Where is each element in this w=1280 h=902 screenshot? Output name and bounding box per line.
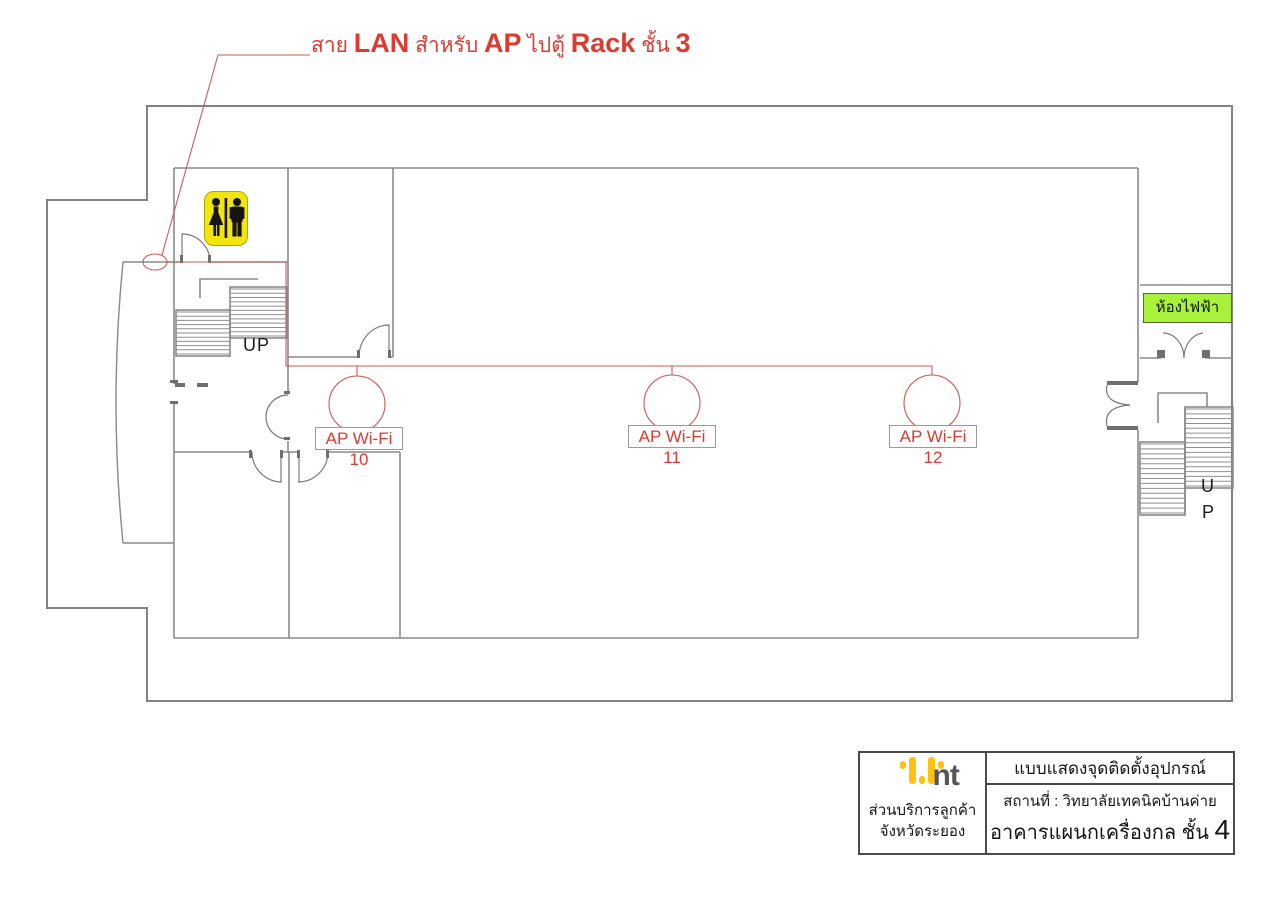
org-line-1: ส่วนบริการลูกค้า — [869, 800, 977, 821]
org-line-2: จังหวัดระยอง — [880, 821, 965, 842]
floor-plan-drawing: สาย LAN สำหรับ AP ไปตู้ Rack ชั้น 3 ห้อ — [0, 0, 1280, 902]
stairs-up-label-right-p: P — [1202, 502, 1214, 523]
ap-circle-12 — [904, 375, 960, 431]
title-block-org-cell: nt ส่วนบริการลูกค้า จังหวัดระยอง — [860, 753, 987, 853]
building-name: อาคารแผนกเครื่องกล ชั้น — [990, 822, 1214, 844]
document-title: แบบแสดงจุดติดตั้งอุปกรณ์ — [987, 753, 1233, 785]
inner-walls — [174, 168, 1233, 638]
annotation-segment: สำหรับ — [409, 29, 484, 62]
annotation-segment: Rack — [571, 28, 636, 59]
lan-cable-annotation: สาย LAN สำหรับ AP ไปตู้ Rack ชั้น 3 — [311, 28, 691, 62]
annotation-segment: ชั้น — [635, 29, 675, 62]
stairs-up-label-right-u: U — [1201, 476, 1214, 497]
annotation-segment: LAN — [354, 28, 410, 59]
location-line: สถานที่ : วิทยาลัยเทคนิคบ้านค่าย — [987, 789, 1233, 813]
annotation-segment: 3 — [676, 28, 691, 59]
stair-treads — [176, 289, 1233, 513]
nt-logo-icon: nt — [900, 757, 972, 799]
annotation-segment: ไปตู้ — [522, 29, 571, 62]
ap-circle-10 — [329, 376, 385, 432]
ap-wifi-12-label: AP Wi-Fi 12 — [889, 425, 977, 448]
ap-wifi-10-label: AP Wi-Fi 10 — [315, 427, 403, 450]
annotation-segment: สาย — [311, 29, 354, 62]
building-line: อาคารแผนกเครื่องกล ชั้น 4 — [987, 813, 1233, 850]
stairs-up-label-left: UP — [243, 335, 270, 356]
electrical-room-label: ห้องไฟฟ้า — [1143, 293, 1232, 323]
ap-circle-11 — [644, 375, 700, 431]
curved-wall — [116, 262, 174, 543]
floor-number: 4 — [1214, 814, 1230, 845]
title-block: nt ส่วนบริการลูกค้า จังหวัดระยอง แบบแสดง… — [858, 751, 1235, 855]
ap-wifi-11-label: AP Wi-Fi 11 — [628, 425, 716, 448]
nt-brand-text: nt — [933, 759, 959, 793]
divider-bar — [225, 198, 228, 238]
annotation-segment: AP — [484, 28, 522, 59]
restroom-sign-icon — [204, 191, 248, 246]
title-block-info-cell: แบบแสดงจุดติดตั้งอุปกรณ์ สถานที่ : วิทยา… — [987, 753, 1233, 853]
lan-cable — [143, 55, 960, 432]
